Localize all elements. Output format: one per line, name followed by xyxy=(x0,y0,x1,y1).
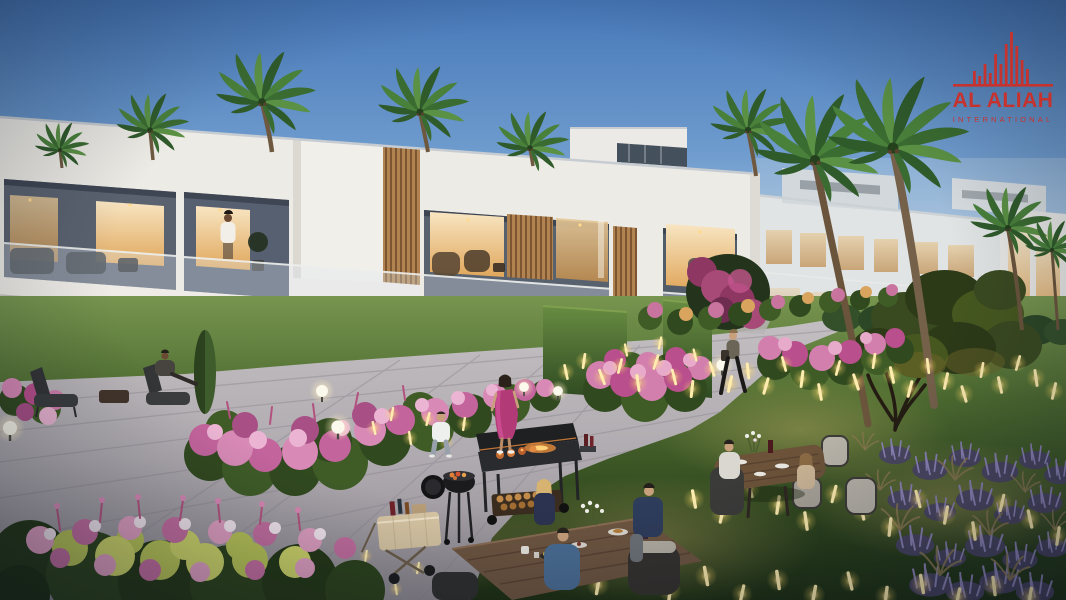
dusk-community-render xyxy=(0,0,1066,600)
al-aliah-logo: AL ALIAH INTERNATIONAL xyxy=(951,28,1055,124)
property-render-screenshot: AL ALIAH INTERNATIONAL xyxy=(0,0,1066,600)
logo-title: AL ALIAH xyxy=(951,90,1055,111)
logo-subtitle: INTERNATIONAL xyxy=(951,116,1055,124)
skyline-bars-icon xyxy=(953,28,1053,88)
vignette-overlay xyxy=(0,0,1066,600)
